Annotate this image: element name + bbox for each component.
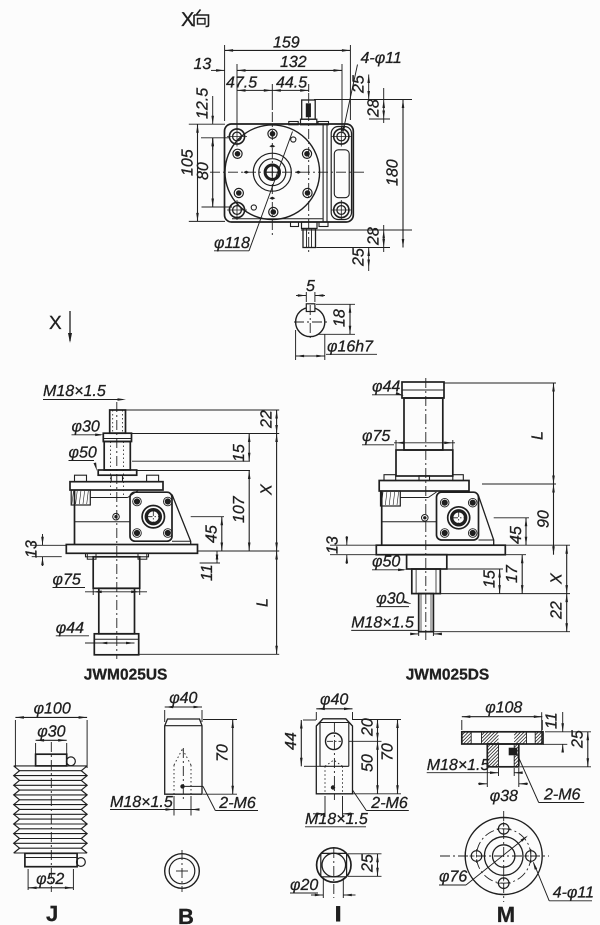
svg-text:44.5: 44.5 — [276, 75, 307, 92]
svg-text:φ40: φ40 — [320, 692, 348, 709]
svg-text:25: 25 — [570, 730, 587, 749]
svg-text:22: 22 — [549, 601, 566, 620]
svg-text:50: 50 — [359, 754, 376, 772]
svg-text:17: 17 — [504, 564, 521, 583]
svg-text:L: L — [255, 598, 272, 607]
svg-text:2-M6: 2-M6 — [543, 787, 581, 804]
svg-text:φ20: φ20 — [290, 877, 318, 894]
svg-text:M18×1.5: M18×1.5 — [43, 383, 106, 400]
svg-text:L: L — [530, 431, 547, 440]
svg-text:φ75: φ75 — [362, 428, 390, 445]
svg-text:13: 13 — [194, 56, 212, 73]
svg-text:25: 25 — [351, 75, 368, 94]
svg-text:B: B — [178, 904, 194, 925]
svg-text:φ30: φ30 — [37, 724, 65, 741]
svg-text:J: J — [46, 901, 58, 925]
svg-text:φ38: φ38 — [490, 788, 518, 805]
svg-text:44: 44 — [283, 732, 300, 750]
svg-text:φ52: φ52 — [36, 871, 64, 888]
svg-text:JWM025US: JWM025US — [84, 667, 168, 684]
svg-text:M18×1.5: M18×1.5 — [427, 757, 490, 774]
svg-text:107: 107 — [231, 495, 248, 523]
svg-text:φ44: φ44 — [56, 620, 84, 637]
svg-text:φ100: φ100 — [34, 701, 71, 718]
svg-text:2-M6: 2-M6 — [218, 795, 256, 812]
svg-text:2-M6: 2-M6 — [370, 795, 408, 812]
svg-text:180: 180 — [385, 159, 402, 186]
svg-text:159: 159 — [273, 35, 300, 52]
svg-text:12.5: 12.5 — [195, 88, 212, 119]
svg-text:φ50: φ50 — [69, 445, 97, 462]
svg-text:28: 28 — [366, 227, 383, 246]
svg-text:X: X — [181, 9, 194, 31]
svg-text:45: 45 — [204, 525, 221, 543]
svg-text:φ44: φ44 — [372, 379, 400, 396]
svg-text:φ108: φ108 — [485, 700, 522, 717]
svg-text:φ76: φ76 — [439, 869, 467, 886]
svg-text:M18×1.5: M18×1.5 — [351, 615, 414, 632]
svg-text:18: 18 — [332, 309, 349, 327]
svg-text:φ118: φ118 — [214, 235, 250, 252]
svg-text:JWM025DS: JWM025DS — [406, 667, 490, 684]
svg-text:132: 132 — [280, 54, 307, 71]
svg-text:φ30: φ30 — [376, 591, 404, 608]
svg-text:φ50: φ50 — [372, 554, 400, 571]
svg-text:X: X — [49, 313, 62, 334]
svg-text:13: 13 — [24, 540, 41, 558]
svg-text:φ16h7: φ16h7 — [327, 339, 374, 356]
svg-text:80: 80 — [195, 162, 212, 180]
svg-text:45: 45 — [508, 526, 525, 544]
svg-text:M: M — [497, 902, 515, 925]
svg-text:15: 15 — [231, 444, 248, 462]
svg-text:11: 11 — [544, 712, 561, 729]
svg-text:4-φ11: 4-φ11 — [361, 50, 402, 67]
svg-text:47.5: 47.5 — [226, 75, 257, 92]
svg-text:X: X — [549, 572, 566, 585]
svg-text:25: 25 — [351, 248, 368, 267]
svg-text:25: 25 — [359, 854, 376, 873]
svg-text:20: 20 — [359, 718, 376, 737]
svg-text:5: 5 — [306, 278, 315, 295]
svg-text:φ75: φ75 — [53, 572, 81, 589]
svg-text:90: 90 — [535, 510, 552, 528]
svg-text:11: 11 — [199, 564, 216, 581]
svg-text:4-φ11: 4-φ11 — [553, 885, 594, 902]
svg-text:22: 22 — [259, 410, 276, 429]
svg-text:X: X — [259, 483, 276, 496]
svg-text:70: 70 — [215, 744, 232, 762]
svg-text:28: 28 — [366, 99, 383, 118]
svg-text:70: 70 — [379, 743, 396, 761]
svg-text:φ30: φ30 — [72, 419, 100, 436]
svg-text:15: 15 — [481, 570, 498, 588]
svg-text:φ40: φ40 — [169, 690, 197, 707]
svg-text:M18×1.5: M18×1.5 — [110, 794, 173, 811]
